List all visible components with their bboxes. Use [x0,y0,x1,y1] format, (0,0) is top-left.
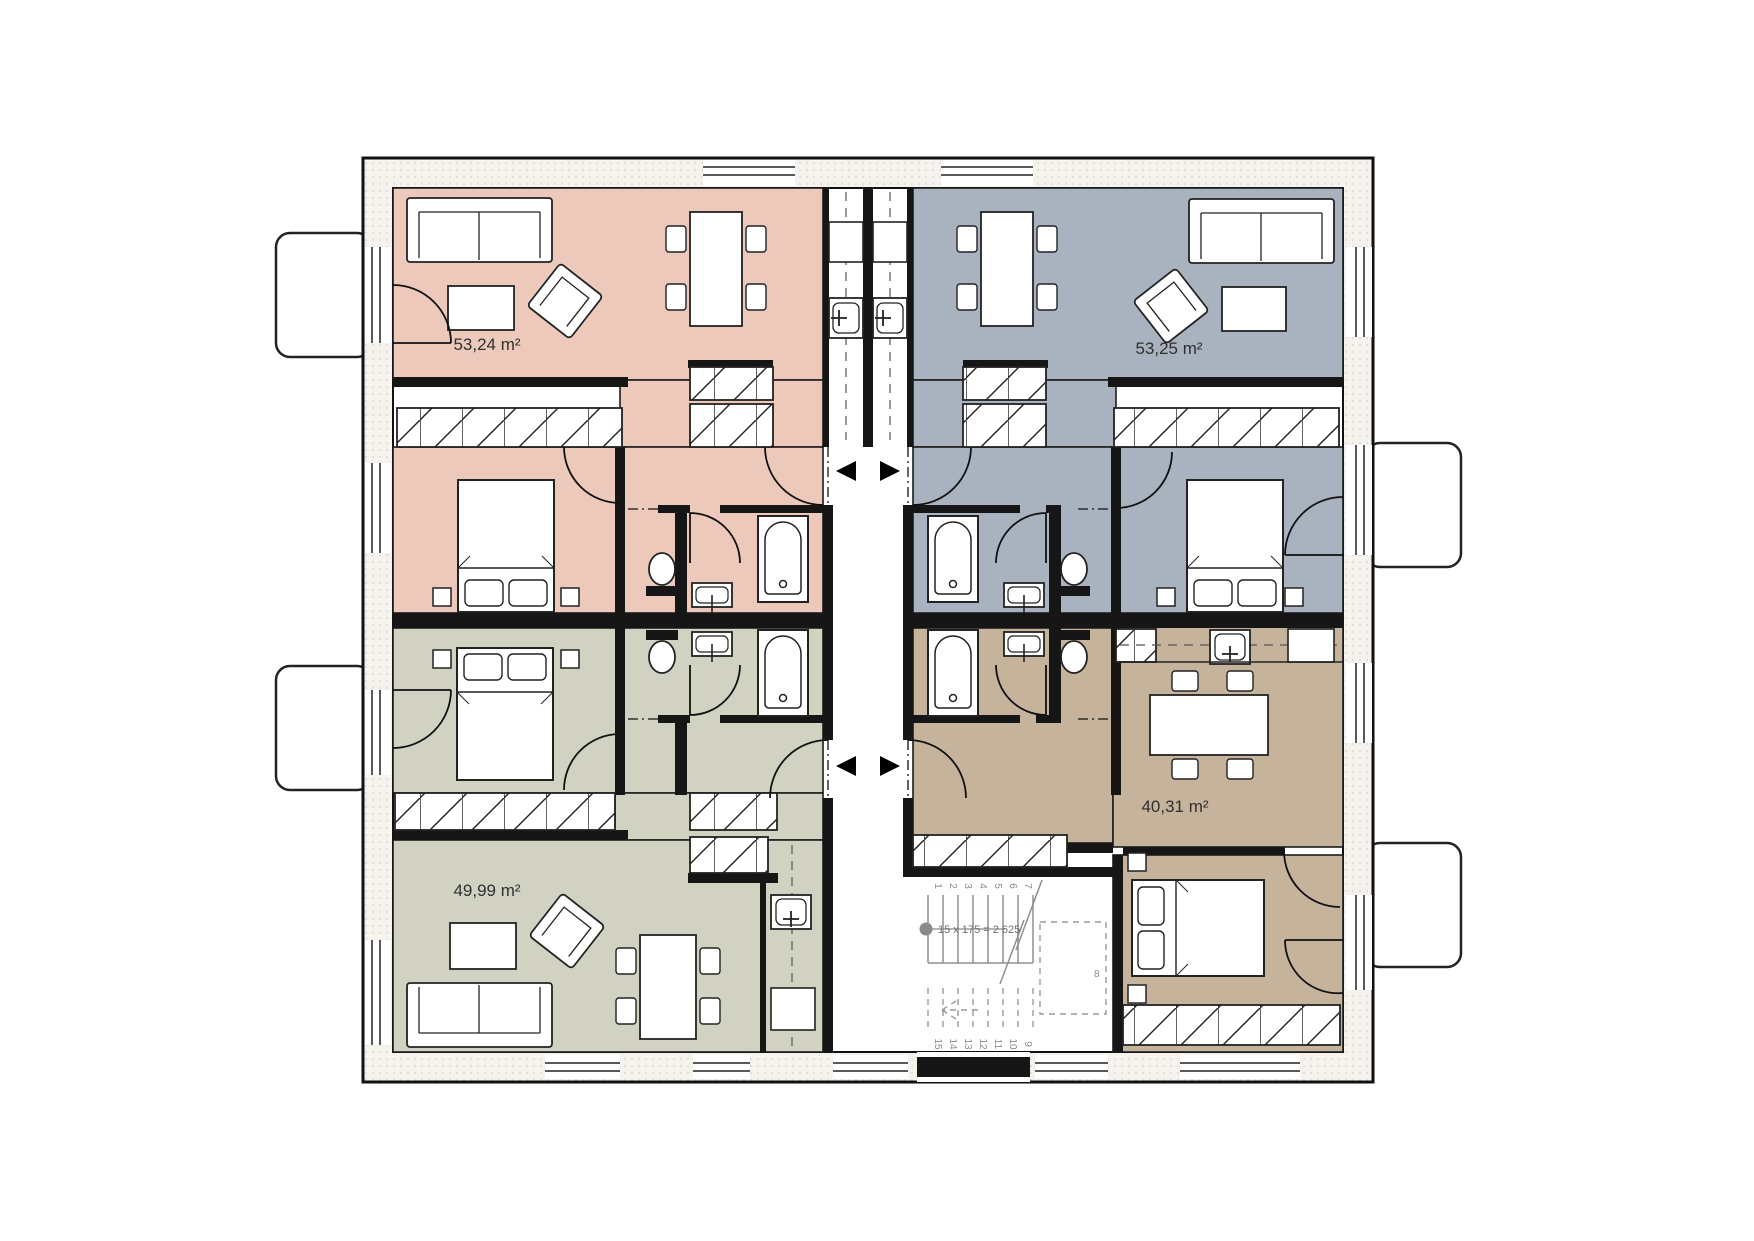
balcony-bottom-left [276,666,371,790]
stair-step-numbers-down: 15 14 13 12 11 10 9 [932,1038,1033,1050]
step-number: 6 [1007,883,1018,889]
step-number: 1 [932,883,943,889]
floor-plan-drawing: 53,24 m² 53,25 m² 49,99 m² 40,31 m² 15 x… [0,0,1754,1241]
chair [1037,284,1057,310]
area-label-bottom-left: 49,99 m² [453,881,520,900]
balcony-door-opening [365,690,391,775]
stair-step-numbers-up: 1 2 3 4 5 6 7 [932,883,1033,889]
chair [666,226,686,252]
bathtub [758,630,808,716]
sofa [1189,199,1334,263]
entrance-door [917,1057,1030,1077]
dining-table [1150,695,1268,755]
dining-table [690,212,742,326]
nightstand [561,588,579,606]
wardrobe-hatch [395,793,615,830]
balcony-top-left [276,233,371,357]
nightstand [1157,588,1175,606]
coffee-table [450,923,516,969]
area-label-top-right: 53,25 m² [1135,339,1202,358]
chair [957,284,977,310]
step-number: 3 [962,883,973,889]
nightstand [1128,853,1146,871]
dining-table [981,212,1033,326]
wardrobe-hatch [690,367,773,400]
wardrobe-hatch [963,404,1046,447]
nightstand [561,650,579,668]
nightstand [1128,985,1146,1003]
kitchen-appliance [1288,629,1334,662]
wardrobe-hatch [690,404,773,447]
nightstand [433,588,451,606]
step-number: 4 [977,883,988,889]
window [365,463,391,553]
chair [1227,671,1253,691]
kitchen-sink [873,298,907,338]
bed [1187,480,1283,612]
chair [616,998,636,1024]
window [1035,1055,1108,1079]
balcony-door-opening [365,247,391,343]
chair [1227,759,1253,779]
window [1346,663,1372,743]
window [365,940,391,1045]
chair [666,284,686,310]
step-number: 13 [962,1038,973,1050]
kitchen-appliance [771,988,815,1030]
step-number: 14 [947,1038,958,1050]
chair [1172,671,1198,691]
step-number: 5 [992,883,1003,889]
toilet [1058,553,1090,596]
stair-mid-number: 8 [1094,969,1100,980]
wardrobe-hatch [690,793,777,830]
window [703,160,795,186]
chair [700,948,720,974]
window [1180,1055,1300,1079]
area-label-top-left: 53,24 m² [453,335,520,354]
chair [1172,759,1198,779]
wardrobe-hatch [913,835,1067,867]
sofa [407,198,552,262]
bed [458,480,554,612]
nightstand [433,650,451,668]
chair [746,226,766,252]
kitchen-cabinet [873,222,907,262]
kitchen-sink [829,298,863,338]
chair [957,226,977,252]
toilet [1058,630,1090,673]
sofa [407,983,552,1047]
bathtub [928,516,978,602]
toilet [646,630,678,673]
wardrobe-hatch [963,367,1046,400]
window [941,160,1033,186]
wardrobe-hatch [690,837,768,873]
chair [700,998,720,1024]
toilet [646,553,678,596]
area-label-bottom-right: 40,31 m² [1141,797,1208,816]
kitchen-sink [771,895,811,929]
nightstand [1285,588,1303,606]
bed [457,648,553,780]
kitchen-cabinet [829,222,863,262]
step-number: 2 [947,883,958,889]
balcony-door-opening [1346,445,1372,555]
balcony-door-opening [1346,895,1372,990]
stair-formula: 15 x 175 = 2 625 [938,924,1020,936]
step-number: 9 [1022,1041,1033,1047]
chair [616,948,636,974]
dining-table [640,935,696,1039]
balcony-bottom-right [1366,843,1461,967]
bathtub [928,630,978,716]
window [545,1055,620,1079]
wardrobe-hatch [1114,408,1339,447]
step-number: 15 [932,1038,943,1050]
chair [746,284,766,310]
wardrobe-hatch [397,408,622,447]
window [1346,247,1372,337]
step-number: 12 [977,1038,988,1050]
window [833,1055,908,1079]
coffee-table [448,286,514,330]
balcony-top-right [1366,443,1461,567]
bed [1132,880,1264,976]
bathtub [758,516,808,602]
chair [1037,226,1057,252]
wardrobe-hatch [1123,1005,1340,1045]
coffee-table [1222,287,1286,331]
step-number: 7 [1022,883,1033,889]
step-number: 10 [1007,1038,1018,1050]
window [693,1055,750,1079]
floor-plan-page: 53,24 m² 53,25 m² 49,99 m² 40,31 m² 15 x… [0,0,1754,1241]
kitchen-sink [1210,630,1250,664]
step-number: 11 [992,1039,1003,1050]
